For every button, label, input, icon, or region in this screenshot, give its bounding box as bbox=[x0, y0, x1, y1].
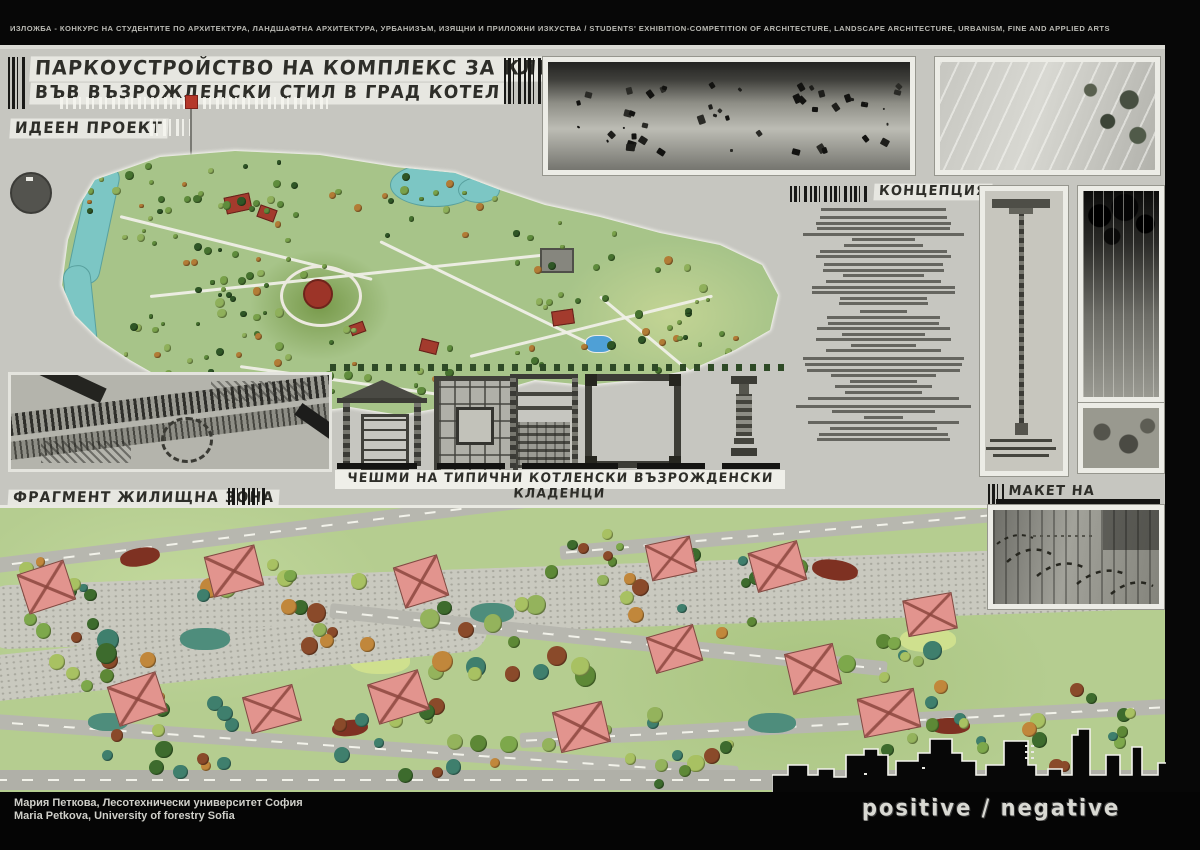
concept-text-line bbox=[816, 338, 950, 341]
tree-marker bbox=[111, 729, 124, 742]
tree-marker bbox=[560, 245, 564, 249]
sketch-mark bbox=[725, 115, 730, 121]
sketch-mark bbox=[808, 85, 814, 92]
sketch-mark bbox=[861, 135, 869, 144]
concept-text-line bbox=[835, 385, 932, 388]
author-line-bg: Мария Петкова, Лесотехнически университе… bbox=[14, 797, 303, 810]
concept-text-line bbox=[850, 380, 917, 383]
sketch-mark bbox=[883, 108, 886, 111]
tree-marker bbox=[716, 627, 728, 639]
tree-marker bbox=[360, 637, 375, 652]
concept-text-line bbox=[821, 208, 946, 211]
concept-text-line bbox=[812, 291, 956, 294]
barcode-icon bbox=[8, 57, 26, 109]
tree-marker bbox=[220, 276, 229, 285]
tree-marker bbox=[81, 680, 93, 692]
concept-text-line bbox=[824, 263, 943, 266]
tree-marker bbox=[139, 204, 144, 209]
concept-text-line bbox=[845, 391, 921, 394]
tree-marker bbox=[152, 724, 165, 737]
hedge-row bbox=[330, 364, 785, 371]
sketch-mark bbox=[822, 147, 828, 154]
tree-marker bbox=[204, 355, 209, 360]
tree-marker bbox=[354, 204, 362, 212]
tree-marker bbox=[182, 182, 187, 187]
tree-marker bbox=[275, 342, 284, 351]
tree-marker bbox=[602, 295, 609, 302]
tree-marker bbox=[218, 293, 222, 297]
sketch-mark bbox=[893, 89, 901, 96]
trees-photo-panel bbox=[1078, 186, 1164, 402]
sketch-mark bbox=[631, 133, 636, 139]
tree-marker bbox=[536, 298, 543, 305]
caption-bar bbox=[637, 463, 705, 469]
sketch-mark bbox=[641, 122, 648, 128]
tree-marker bbox=[468, 667, 482, 681]
tree-marker bbox=[542, 738, 556, 752]
tree-marker bbox=[218, 248, 222, 252]
tree-marker bbox=[155, 741, 172, 758]
tree-marker bbox=[322, 264, 327, 269]
tree-marker bbox=[210, 280, 214, 284]
slogan-positive-negative: positive / negative bbox=[862, 795, 1120, 821]
concept-text-line bbox=[842, 333, 926, 336]
tree-marker bbox=[733, 336, 739, 342]
concept-text-line bbox=[844, 244, 923, 247]
concept-text-line bbox=[796, 405, 972, 408]
tree-marker bbox=[137, 234, 145, 242]
tree-marker bbox=[432, 651, 453, 672]
bottom-model-photo-panel bbox=[988, 505, 1164, 609]
tree-marker bbox=[667, 325, 673, 331]
sketch-mark bbox=[576, 100, 581, 106]
caption-bar bbox=[722, 463, 780, 469]
tree-marker bbox=[66, 667, 80, 681]
concept-text-line bbox=[820, 216, 947, 219]
master-plan-label: ИДЕЕН ПРОЕКТ bbox=[9, 119, 168, 139]
sketch-mark bbox=[737, 87, 742, 92]
tree-marker bbox=[458, 622, 474, 638]
tree-marker bbox=[351, 328, 356, 333]
tree-marker bbox=[275, 221, 282, 228]
tree-marker bbox=[409, 216, 415, 222]
tree-marker bbox=[198, 191, 205, 198]
tree-marker bbox=[165, 207, 172, 214]
tree-marker bbox=[197, 753, 209, 765]
tree-marker bbox=[242, 333, 247, 338]
tree-marker bbox=[625, 753, 637, 765]
tree-marker bbox=[173, 765, 187, 779]
sketch-mark bbox=[818, 89, 826, 98]
barcode-icon bbox=[790, 186, 868, 202]
tree-marker bbox=[87, 618, 99, 630]
tree-marker bbox=[513, 230, 519, 236]
sketch-mark bbox=[717, 108, 723, 114]
sketch-mark bbox=[697, 114, 706, 124]
tree-marker bbox=[443, 206, 450, 213]
caption-bar bbox=[437, 463, 505, 469]
tree-marker bbox=[184, 196, 192, 204]
tree-marker bbox=[257, 270, 264, 277]
tree-marker bbox=[329, 192, 336, 199]
concept-text-line bbox=[843, 274, 924, 277]
tree-marker bbox=[334, 718, 348, 732]
sketch-mark bbox=[584, 91, 592, 98]
sketch-mark bbox=[796, 82, 805, 92]
tree-marker bbox=[925, 696, 938, 709]
tree-marker bbox=[344, 371, 353, 380]
tree-marker bbox=[400, 186, 409, 195]
tree-marker bbox=[462, 232, 469, 239]
tree-marker bbox=[704, 748, 720, 764]
sketch-mark bbox=[895, 82, 902, 89]
building-marker bbox=[551, 309, 575, 327]
tree-marker bbox=[1070, 683, 1084, 697]
caption-bar bbox=[522, 463, 618, 469]
caption-bar bbox=[337, 463, 417, 469]
sketch-mark bbox=[662, 85, 668, 90]
tree-marker bbox=[529, 345, 535, 351]
skyline-silhouette bbox=[772, 727, 1166, 794]
tree-marker bbox=[300, 271, 308, 279]
tree-marker bbox=[204, 247, 212, 255]
tree-marker bbox=[216, 348, 224, 356]
tree-marker bbox=[558, 221, 562, 225]
tree-marker bbox=[934, 680, 948, 694]
tree-marker bbox=[285, 238, 290, 243]
well-drawing-gable bbox=[337, 380, 427, 468]
tree-marker bbox=[124, 352, 129, 357]
column-shaft bbox=[1019, 214, 1024, 423]
concept-text-line bbox=[832, 410, 934, 413]
house-marker bbox=[902, 592, 958, 637]
terrace-arcs bbox=[993, 510, 1159, 604]
tree-marker bbox=[581, 344, 587, 350]
tree-marker bbox=[112, 187, 120, 195]
tree-marker bbox=[484, 614, 502, 632]
concept-text-line bbox=[830, 427, 937, 430]
concept-text-line bbox=[817, 327, 950, 330]
author-credits: Мария Петкова, Лесотехнически университе… bbox=[14, 797, 303, 823]
tree-marker bbox=[285, 354, 292, 361]
concept-heading: КОНЦЕПЦИЯ bbox=[873, 184, 992, 201]
concept-text-line bbox=[826, 349, 941, 352]
tree-marker bbox=[446, 759, 461, 774]
concept-text-line bbox=[816, 222, 952, 225]
model-underline bbox=[996, 499, 1160, 504]
tree-marker bbox=[277, 201, 284, 208]
well-drawing-column bbox=[731, 376, 757, 468]
tree-marker bbox=[624, 573, 635, 584]
tree-marker bbox=[253, 287, 261, 295]
tree-marker bbox=[293, 212, 299, 218]
tree-marker bbox=[628, 607, 644, 623]
tree-marker bbox=[526, 595, 546, 615]
tree-marker bbox=[545, 565, 559, 579]
barcode-icon bbox=[150, 119, 190, 136]
tree-marker bbox=[578, 543, 589, 554]
sketch-mark bbox=[577, 126, 580, 129]
well-drawing-plan bbox=[585, 374, 681, 468]
tree-marker bbox=[217, 757, 231, 771]
tree-marker bbox=[173, 234, 178, 239]
tree-marker bbox=[683, 335, 688, 340]
tree-marker bbox=[253, 314, 260, 321]
tree-marker bbox=[402, 173, 410, 181]
building-marker bbox=[419, 338, 440, 355]
sketch-mark bbox=[709, 82, 717, 90]
tree-marker bbox=[157, 209, 163, 215]
tree-marker bbox=[102, 750, 113, 761]
tree-marker bbox=[217, 309, 227, 319]
sketch-mark bbox=[849, 98, 854, 102]
concept-text-line bbox=[839, 302, 928, 305]
tree-marker bbox=[385, 233, 390, 238]
sketch-mark bbox=[708, 104, 713, 110]
tree-marker bbox=[187, 358, 193, 364]
concept-text-line bbox=[820, 250, 947, 253]
tree-marker bbox=[725, 348, 732, 355]
tree-marker bbox=[194, 243, 203, 252]
board-top-highlight bbox=[0, 45, 1165, 49]
tree-marker bbox=[470, 735, 487, 752]
concept-text-line bbox=[816, 255, 952, 258]
sketch-mark bbox=[812, 107, 818, 112]
sketch-mark bbox=[755, 130, 763, 138]
concept-text-line bbox=[808, 397, 958, 400]
tree-marker bbox=[642, 328, 650, 336]
road bbox=[0, 505, 616, 575]
sketch-mark bbox=[831, 102, 840, 112]
tree-marker bbox=[838, 655, 856, 673]
flag-marker-icon bbox=[185, 95, 198, 109]
tree-marker bbox=[508, 636, 520, 648]
tree-marker bbox=[273, 180, 282, 189]
concept-text-line bbox=[827, 316, 940, 319]
river-shape bbox=[62, 264, 103, 388]
tree-marker bbox=[215, 298, 225, 308]
tree-marker bbox=[307, 603, 326, 622]
tree-marker bbox=[275, 308, 285, 318]
tree-marker bbox=[374, 738, 383, 747]
concept-body-text bbox=[792, 208, 975, 478]
tree-marker bbox=[286, 257, 291, 262]
tree-marker bbox=[1086, 693, 1097, 704]
sketch-mark bbox=[607, 130, 616, 140]
footer-strip: Мария Петкова, Лесотехнически университе… bbox=[0, 792, 1200, 850]
concept-text-line bbox=[808, 421, 958, 424]
concept-text-line bbox=[807, 369, 960, 372]
tree-marker bbox=[87, 208, 93, 214]
tree-marker bbox=[527, 235, 533, 241]
model-photo-panel bbox=[935, 57, 1160, 175]
residential-sketch-panel bbox=[8, 372, 332, 472]
tree-marker bbox=[879, 672, 890, 683]
concept-text-line bbox=[828, 322, 939, 325]
concept-text-line bbox=[851, 344, 916, 347]
tree-marker bbox=[900, 652, 910, 662]
tree-marker bbox=[152, 327, 158, 333]
concept-text-line bbox=[817, 227, 951, 230]
tree-marker bbox=[49, 654, 65, 670]
concept-text-line bbox=[812, 286, 954, 289]
tree-marker bbox=[747, 617, 757, 627]
building-marker bbox=[540, 248, 574, 273]
tree-marker bbox=[125, 171, 134, 180]
well-drawing-frame bbox=[510, 374, 578, 468]
tree-marker bbox=[154, 352, 160, 358]
sketch-mark bbox=[712, 114, 716, 118]
concept-text-line bbox=[852, 238, 914, 241]
tree-marker bbox=[232, 251, 240, 259]
tree-marker bbox=[291, 182, 298, 189]
tree-marker bbox=[240, 311, 247, 318]
column-capital bbox=[992, 199, 1050, 208]
tree-marker bbox=[164, 344, 172, 352]
tree-marker bbox=[145, 163, 152, 170]
tree-marker bbox=[612, 231, 618, 237]
tree-marker bbox=[87, 200, 92, 205]
concept-text-line bbox=[864, 416, 903, 419]
tree-marker bbox=[446, 180, 454, 188]
tree-marker bbox=[382, 193, 388, 199]
tree-marker bbox=[142, 229, 146, 233]
tree-marker bbox=[659, 339, 666, 346]
tree-marker bbox=[274, 359, 282, 367]
tree-marker bbox=[672, 750, 683, 761]
tree-marker bbox=[388, 198, 394, 204]
sketch-mark bbox=[623, 127, 626, 130]
tree-marker bbox=[88, 188, 94, 194]
tree-marker bbox=[655, 759, 668, 772]
tree-marker bbox=[208, 168, 214, 174]
tree-marker bbox=[515, 260, 520, 265]
tree-marker bbox=[447, 345, 454, 352]
tree-marker bbox=[196, 322, 200, 326]
tree-marker bbox=[1125, 708, 1136, 719]
tree-marker bbox=[217, 706, 232, 721]
tree-marker bbox=[334, 747, 350, 763]
tree-marker bbox=[301, 637, 319, 655]
tree-marker bbox=[243, 164, 248, 169]
sketch-mark bbox=[645, 89, 655, 99]
sketch-mark bbox=[791, 148, 800, 156]
tree-marker bbox=[620, 591, 634, 605]
tree-marker bbox=[152, 241, 157, 246]
tree-marker bbox=[888, 637, 900, 649]
house-marker bbox=[552, 701, 611, 753]
tree-marker bbox=[533, 664, 549, 680]
concept-text-line bbox=[803, 357, 964, 360]
tree-marker bbox=[684, 264, 691, 271]
tree-marker bbox=[236, 352, 242, 358]
column-drawing-panel bbox=[980, 186, 1068, 476]
tree-marker bbox=[183, 260, 190, 267]
tree-marker bbox=[437, 601, 452, 616]
tree-marker bbox=[677, 604, 687, 614]
house-marker bbox=[646, 624, 703, 674]
concept-text-line bbox=[840, 297, 927, 300]
tree-marker bbox=[608, 254, 615, 261]
concept-text-line bbox=[826, 280, 941, 283]
tree-marker bbox=[267, 559, 279, 571]
tree-marker bbox=[685, 308, 691, 314]
tree-marker bbox=[237, 197, 245, 205]
tree-marker bbox=[122, 235, 128, 241]
tree-marker bbox=[515, 597, 529, 611]
poster-board: ИЗЛОЖБА - КОНКУРС НА СТУДЕНТИТЕ ПО АРХИТ… bbox=[0, 0, 1200, 850]
competition-title-line: ИЗЛОЖБА - КОНКУРС НА СТУДЕНТИТЕ ПО АРХИТ… bbox=[10, 24, 1192, 33]
tree-marker bbox=[602, 529, 613, 540]
tree-marker bbox=[738, 556, 748, 566]
tree-marker bbox=[256, 257, 261, 262]
tree-marker bbox=[433, 190, 439, 196]
concept-text-line bbox=[817, 438, 949, 441]
tree-marker bbox=[647, 707, 663, 723]
sketch-mark bbox=[886, 122, 888, 125]
concept-text-line bbox=[823, 269, 945, 272]
tree-marker bbox=[329, 340, 334, 345]
tree-marker bbox=[419, 197, 423, 201]
house-marker bbox=[242, 684, 302, 734]
tree-marker bbox=[699, 284, 708, 293]
tree-marker bbox=[221, 287, 227, 293]
wells-caption: ЧЕШМИ НА ТИПИЧНИ КОТЛЕНСКИ ВЪЗРОЖДЕНСКИ … bbox=[335, 470, 785, 489]
tree-marker bbox=[71, 632, 82, 643]
tree-marker bbox=[277, 160, 281, 164]
tree-marker bbox=[351, 573, 367, 589]
tree-marker bbox=[515, 351, 520, 356]
tree-marker bbox=[149, 760, 164, 775]
concept-text-line bbox=[831, 374, 935, 377]
tree-marker bbox=[158, 196, 165, 203]
tree-marker bbox=[664, 256, 673, 265]
tree-marker bbox=[597, 575, 609, 587]
concept-text-line bbox=[803, 233, 965, 236]
author-line-en: Maria Petkova, University of forestry So… bbox=[14, 810, 303, 823]
tree-marker bbox=[335, 189, 341, 195]
tree-marker bbox=[284, 570, 296, 582]
concept-text-line bbox=[819, 433, 949, 436]
tree-marker bbox=[267, 196, 275, 204]
tree-marker bbox=[264, 208, 269, 213]
sketch-mark bbox=[606, 139, 609, 143]
tree-marker bbox=[191, 259, 198, 266]
tree-marker bbox=[99, 177, 103, 181]
tree-marker bbox=[913, 656, 924, 667]
tree-marker bbox=[230, 296, 236, 302]
detail-photo-panel bbox=[1078, 403, 1164, 473]
tree-marker bbox=[149, 314, 154, 319]
concept-text-line bbox=[805, 363, 962, 366]
tree-marker bbox=[249, 206, 255, 212]
tree-marker bbox=[547, 646, 567, 666]
tree-marker bbox=[543, 305, 548, 310]
tree-marker bbox=[490, 758, 500, 768]
tree-marker bbox=[148, 216, 153, 221]
tree-marker bbox=[720, 741, 733, 754]
tree-marker bbox=[505, 666, 521, 682]
sketch-mark bbox=[626, 87, 633, 95]
tree-marker bbox=[607, 341, 616, 350]
tree-marker bbox=[149, 180, 154, 185]
tree-marker bbox=[546, 299, 553, 306]
tree-marker bbox=[161, 322, 165, 326]
tree-marker bbox=[223, 201, 231, 209]
building-marker bbox=[303, 279, 333, 309]
tree-marker bbox=[534, 266, 542, 274]
tree-marker bbox=[923, 641, 941, 659]
